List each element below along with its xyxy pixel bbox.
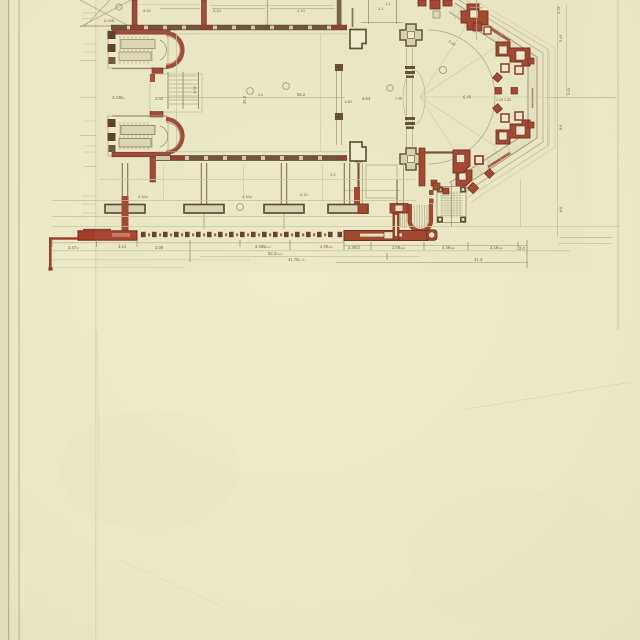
svg-text:2.47m: 2.47m (68, 245, 79, 250)
